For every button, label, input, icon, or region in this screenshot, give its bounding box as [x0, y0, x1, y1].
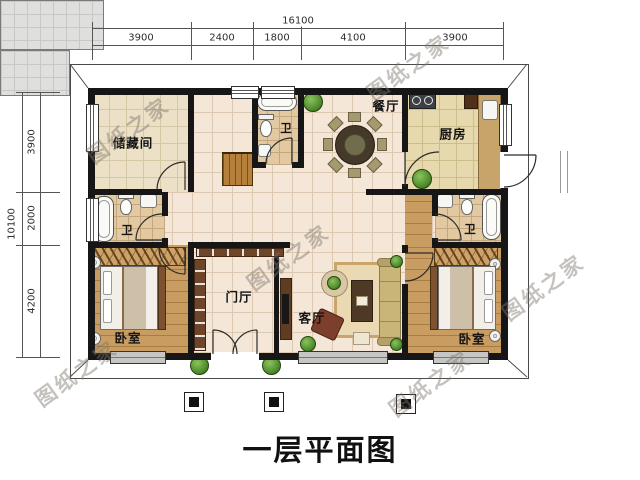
dim-segment: 4100: [338, 33, 367, 44]
coffee-table-item: [356, 296, 368, 306]
dim-segment: 2000: [27, 203, 38, 232]
kitchen-door-opening: [500, 152, 509, 188]
page-title: 一层平面图: [242, 427, 397, 469]
pillow: [103, 271, 112, 295]
porch-step-line: [567, 151, 568, 193]
wall: [162, 192, 168, 216]
dining-table-top: [344, 134, 366, 156]
dim-segment: 3900: [126, 33, 155, 44]
room-label-foyer: 门厅: [225, 287, 252, 306]
wall: [402, 189, 504, 195]
room-label-bath-right: 卫: [464, 221, 476, 237]
window: [231, 86, 259, 99]
tv: [282, 294, 289, 324]
wall: [92, 189, 162, 195]
dim-line-top-total: [92, 28, 504, 29]
dim-extension: [301, 22, 302, 60]
window: [298, 351, 388, 364]
dim-extension: [503, 22, 504, 60]
bath-sink: [258, 144, 271, 157]
wall: [432, 192, 438, 216]
kitchen-sink: [482, 100, 498, 120]
wall: [188, 92, 194, 192]
wardrobe: [94, 247, 186, 266]
window: [86, 198, 99, 242]
entry-door-opening: [211, 352, 259, 361]
dim-extension: [191, 22, 192, 60]
dim-extension: [92, 22, 93, 60]
wall: [402, 92, 408, 152]
wall: [188, 242, 194, 360]
wall: [252, 162, 266, 168]
room-label-bedroom-left: 卧室: [114, 328, 141, 347]
dim-line-left-segments: [40, 92, 41, 357]
room-label-living: 客厅: [298, 308, 325, 327]
bath-sink: [437, 194, 453, 208]
porch-column: [184, 392, 204, 412]
kitchen-side-porch: [0, 50, 70, 96]
potted-plant: [303, 92, 323, 112]
bookshelf: [194, 259, 206, 351]
kitchen-upper-cabinet: [464, 93, 478, 109]
potted-plant: [327, 276, 341, 290]
bed-footboard: [430, 266, 438, 330]
dim-extension: [16, 92, 60, 93]
blanket: [122, 267, 146, 329]
room-label-kitchen: 厨房: [439, 124, 466, 143]
floor-hall-nook: [405, 192, 432, 245]
dining-chair: [348, 112, 361, 122]
wall: [252, 92, 258, 168]
dim-segment: 1800: [262, 33, 291, 44]
toilet-bowl: [120, 199, 132, 215]
pillow: [103, 299, 112, 323]
potted-plant: [300, 336, 316, 352]
pillow: [484, 271, 493, 295]
staircase: [222, 152, 253, 186]
room-label-bath-left: 卫: [121, 222, 133, 238]
room-label-bedroom-right: 卧室: [458, 329, 485, 348]
dim-total-width: 16100: [280, 16, 316, 27]
dim-extension: [16, 245, 60, 246]
entrance-porch: [0, 0, 104, 50]
stove-burner: [412, 96, 421, 105]
dim-extension: [16, 192, 60, 193]
toilet-bowl: [461, 199, 473, 215]
window: [499, 104, 512, 146]
wall: [432, 242, 504, 248]
dim-extension: [253, 22, 254, 60]
wall: [92, 242, 168, 248]
stove-burner: [424, 96, 433, 105]
window: [261, 86, 295, 99]
blanket: [450, 267, 474, 329]
toilet-bowl: [260, 120, 272, 137]
dim-segment: 3900: [27, 127, 38, 156]
dim-segment: 4200: [27, 286, 38, 315]
pillow: [484, 299, 493, 323]
dining-chair: [348, 168, 361, 178]
dim-segment: 2400: [207, 33, 236, 44]
dining-chair: [377, 138, 387, 151]
bathtub: [482, 194, 501, 240]
dining-chair: [323, 138, 333, 151]
dim-total-height: 10100: [7, 206, 18, 242]
sofa: [379, 264, 401, 342]
wall: [162, 238, 168, 248]
wall: [432, 238, 438, 248]
bed-footboard: [158, 266, 166, 330]
porch-column: [264, 392, 284, 412]
dim-extension: [16, 357, 60, 358]
porch-step-line: [560, 151, 561, 193]
wall: [366, 189, 404, 195]
bath-sink: [140, 194, 157, 208]
wall: [402, 284, 408, 360]
dim-line-left-total: [22, 92, 23, 357]
potted-plant: [412, 169, 432, 189]
potted-plant: [390, 255, 403, 268]
room-label-bath-top: 卫: [280, 120, 292, 136]
nightstand: [489, 330, 501, 342]
floor-plan-canvas: 16100 3900 2400 1800 4100 3900 10100 390…: [0, 0, 640, 480]
stool: [353, 332, 370, 345]
wall: [298, 92, 304, 168]
wall: [402, 245, 408, 253]
